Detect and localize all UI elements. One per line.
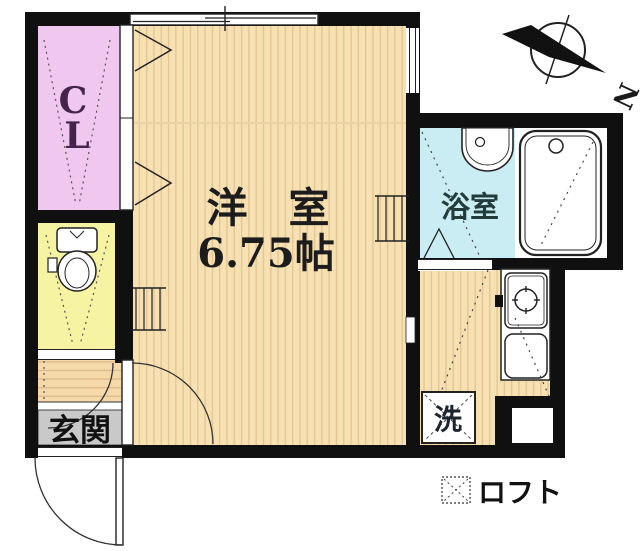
closet-label-line2: L (64, 115, 89, 157)
entrance-hall-floor (38, 360, 122, 402)
bathroom-label: 浴室 (441, 190, 499, 224)
kitchen-counter (495, 269, 550, 380)
toilet-threshold (38, 349, 115, 360)
room-size-label: 6.75帖 (197, 230, 334, 277)
stove-icon (505, 273, 547, 328)
loft-legend-label: ロフト (478, 476, 562, 509)
floor-plan-page: N ロフト C L 洋 室 6.75帖 浴室 玄関 洗 (0, 0, 640, 551)
bath-sink-icon (462, 128, 513, 171)
window-right (406, 28, 419, 93)
kitchen-sink-icon (505, 334, 547, 378)
room-name-label: 洋 室 (207, 184, 330, 232)
wall-opening (406, 317, 415, 343)
exterior-notch (512, 408, 553, 443)
floor-plan-svg: N ロフト C L 洋 室 6.75帖 浴室 玄関 洗 (0, 0, 640, 551)
faucet-knob-icon (495, 295, 503, 307)
laundry-label: 洗 (434, 403, 462, 436)
entrance-step (38, 402, 122, 410)
entrance-label: 玄関 (49, 413, 111, 449)
